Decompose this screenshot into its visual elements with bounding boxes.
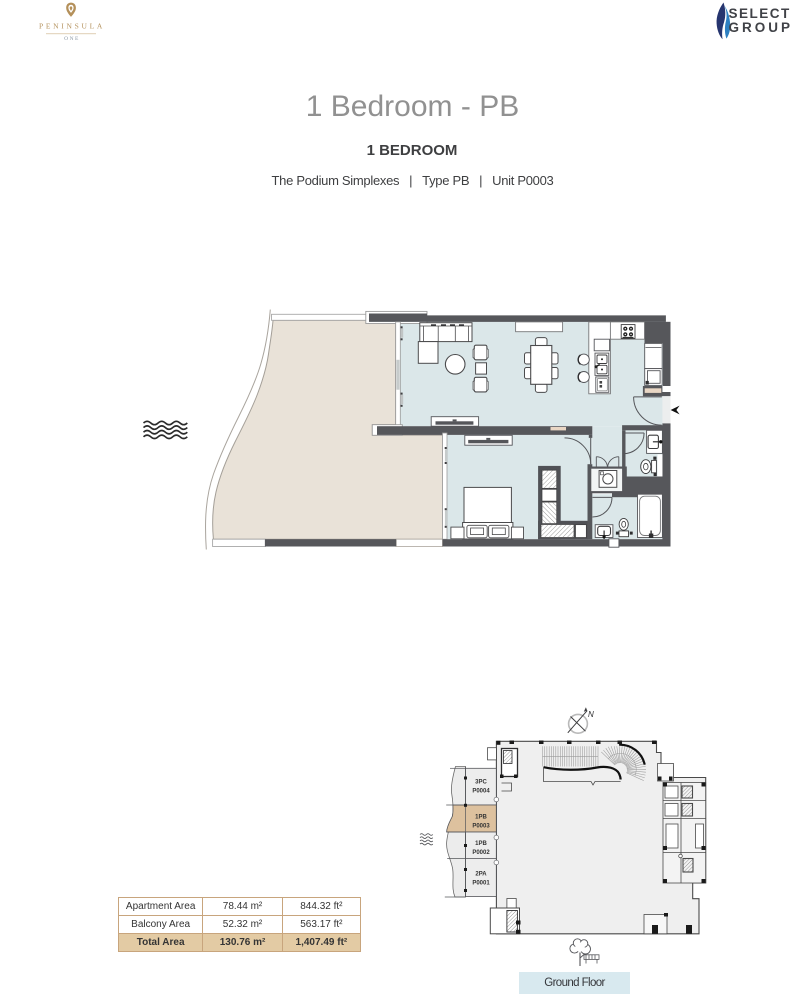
svg-text:1PB: 1PB [475,815,487,821]
svg-text:GROUP: GROUP [729,20,794,35]
svg-text:PENINSULA: PENINSULA [39,21,105,30]
svg-text:ONE: ONE [64,36,80,42]
svg-text:P0003: P0003 [472,824,490,830]
svg-text:SELECT: SELECT [729,6,791,21]
svg-text:P0002: P0002 [472,850,490,856]
svg-text:3PC: 3PC [475,780,487,786]
svg-text:P0001: P0001 [472,881,490,887]
svg-text:P0004: P0004 [472,789,490,795]
svg-text:1PB: 1PB [475,841,487,847]
svg-text:2PA: 2PA [475,872,487,878]
svg-text:N: N [588,710,594,719]
